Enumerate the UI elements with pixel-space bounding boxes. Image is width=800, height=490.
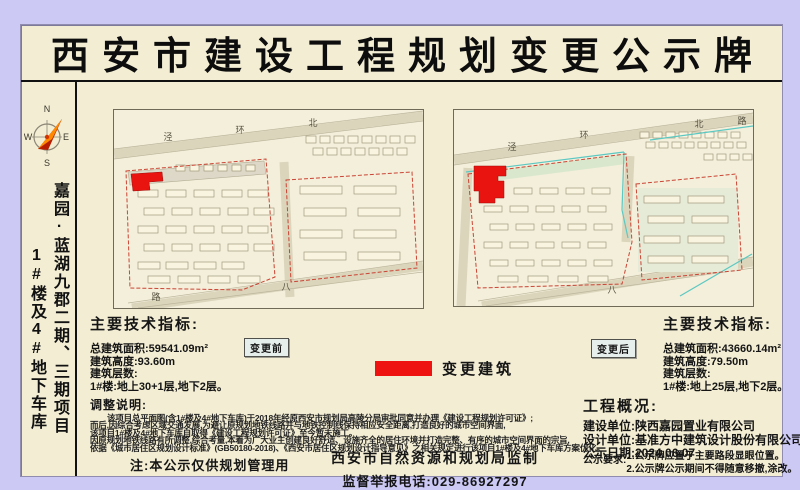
building-footprint bbox=[166, 190, 186, 197]
building-footprint bbox=[731, 132, 740, 138]
sidebar: N S W E 嘉园·蓝湖九郡二期、三期项目 1#楼及4#地下车库 bbox=[21, 82, 77, 476]
building-footprint bbox=[178, 276, 200, 283]
building-footprint bbox=[514, 188, 532, 194]
building-footprint bbox=[698, 142, 707, 148]
building-footprint bbox=[536, 206, 554, 212]
building-footprint bbox=[562, 242, 580, 248]
building-footprint bbox=[238, 276, 260, 283]
building-footprint bbox=[540, 188, 558, 194]
building-footprint bbox=[672, 142, 681, 148]
building-footprint bbox=[692, 256, 728, 263]
building-footprint bbox=[138, 226, 158, 233]
site-plan-before: 泾 环 北 路 八 bbox=[113, 109, 424, 309]
building-footprint bbox=[490, 224, 508, 230]
building-footprint bbox=[334, 136, 344, 143]
page-title: 西安市建设工程规划变更公示牌 bbox=[21, 25, 782, 82]
road-label: 环 bbox=[579, 130, 588, 140]
building-footprint bbox=[510, 206, 528, 212]
road-label: 环 bbox=[235, 125, 244, 135]
building-footprint bbox=[724, 142, 733, 148]
building-footprint bbox=[588, 242, 606, 248]
project-name-line1: 嘉园·蓝湖九郡二期、三期项目 bbox=[47, 182, 71, 435]
building-footprint bbox=[568, 260, 586, 266]
report-phone-line: 监督举报电话:029-86927297 bbox=[285, 471, 585, 490]
building-footprint bbox=[222, 262, 244, 269]
building-footprint bbox=[730, 154, 739, 160]
building-footprint bbox=[246, 165, 255, 171]
building-footprint bbox=[588, 206, 606, 212]
building-footprint bbox=[341, 148, 351, 155]
building-footprint bbox=[358, 208, 400, 216]
changed-building-swatch bbox=[375, 361, 432, 376]
building-footprint bbox=[594, 260, 612, 266]
building-footprint bbox=[743, 154, 752, 160]
building-footprint bbox=[558, 276, 578, 282]
building-footprint bbox=[172, 244, 192, 251]
notice-board-screenshot: 西安市建设工程规划变更公示牌 N S W E 嘉园·蓝湖九郡二期、三期项目 1#… bbox=[0, 0, 800, 490]
building-footprint bbox=[194, 226, 214, 233]
building-footprint bbox=[138, 190, 158, 197]
building-footprint bbox=[248, 226, 268, 233]
building-footprint bbox=[685, 142, 694, 148]
floors-detail-after: 1#楼:地上25层,地下2层。 bbox=[663, 381, 800, 394]
building-footprint bbox=[327, 148, 337, 155]
building-footprint bbox=[566, 188, 584, 194]
building-footprint bbox=[376, 136, 386, 143]
building-footprint bbox=[562, 206, 580, 212]
building-footprint bbox=[405, 136, 415, 143]
changed-building-highlight bbox=[474, 166, 506, 203]
building-height-before: 建筑高度:93.60m bbox=[90, 356, 320, 369]
building-footprint bbox=[516, 260, 534, 266]
road-label: 八 bbox=[281, 282, 290, 292]
building-footprint bbox=[397, 148, 407, 155]
road-label: 泾 bbox=[163, 131, 172, 142]
main-content: 泾 环 北 路 八 bbox=[77, 82, 782, 476]
building-footprint bbox=[711, 142, 720, 148]
road-label: 泾 bbox=[507, 141, 516, 152]
building-footprint bbox=[594, 224, 612, 230]
building-footprint bbox=[646, 142, 655, 148]
road-label: 北 bbox=[694, 119, 703, 129]
builder-line: 建设单位:陕西嘉园置业有限公司 bbox=[583, 420, 793, 434]
building-footprint bbox=[568, 224, 586, 230]
building-footprint bbox=[528, 276, 548, 282]
building-footprint bbox=[144, 208, 164, 215]
notice-board-panel: 西安市建设工程规划变更公示牌 N S W E 嘉园·蓝湖九郡二期、三期项目 1#… bbox=[20, 24, 783, 477]
building-footprint bbox=[194, 262, 216, 269]
building-footprint bbox=[644, 196, 680, 203]
planning-note: 注:本公示仅供规划管理用 bbox=[130, 455, 289, 474]
building-footprint bbox=[204, 165, 213, 171]
designer-line: 设计单位:基准方中建筑设计股份有限公司 bbox=[583, 434, 793, 448]
building-footprint bbox=[510, 242, 528, 248]
building-footprint bbox=[644, 236, 680, 243]
building-footprint bbox=[692, 216, 728, 223]
building-footprint bbox=[354, 230, 396, 238]
after-change-tag: 变更后 bbox=[591, 339, 636, 358]
footer-center: 西安市自然资源和规划局监制 监督举报电话:029-86927297 bbox=[285, 448, 585, 490]
requirements-label: 公示要求: bbox=[583, 451, 626, 476]
building-footprint bbox=[222, 226, 242, 233]
building-footprint bbox=[688, 196, 724, 203]
building-footprint bbox=[383, 148, 393, 155]
building-footprint bbox=[484, 242, 502, 248]
road-label: 八 bbox=[607, 285, 616, 295]
building-footprint bbox=[166, 262, 188, 269]
adjustment-heading: 调整说明: bbox=[90, 396, 590, 413]
building-footprints bbox=[138, 136, 415, 283]
compass-n-label: N bbox=[44, 104, 51, 114]
building-footprint bbox=[592, 188, 610, 194]
building-footprint bbox=[362, 136, 372, 143]
building-footprint bbox=[144, 244, 164, 251]
indicators-before: 主要技术指标: 总建筑面积:59541.09m² 建筑高度:93.60m 建筑层… bbox=[90, 313, 320, 393]
floors-detail-before: 1#楼:地上30+1层,地下2层。 bbox=[90, 381, 320, 394]
compass-s-label: S bbox=[44, 158, 50, 168]
building-footprint bbox=[228, 208, 248, 215]
building-footprint bbox=[232, 165, 241, 171]
building-footprint bbox=[166, 226, 186, 233]
building-footprint bbox=[717, 154, 726, 160]
project-name-line2: 1#楼及4#地下车库 bbox=[24, 247, 48, 431]
building-footprint bbox=[390, 136, 400, 143]
compass-icon: N S W E bbox=[24, 100, 70, 168]
adjustment-explanation: 调整说明: 该项目总平面图(含1#楼及4#地下车库)于2018年经原西安市规划局… bbox=[90, 396, 590, 452]
building-footprint bbox=[536, 242, 554, 248]
total-area-after: 总建筑面积:43660.14m² bbox=[663, 343, 800, 356]
building-footprint bbox=[588, 276, 608, 282]
indicators-before-heading: 主要技术指标: bbox=[90, 313, 320, 334]
building-footprint bbox=[194, 190, 214, 197]
building-footprint bbox=[200, 208, 220, 215]
publicity-requirements: 公示要求: 1.公示牌应置于主要路段显眼位置。 2.公示牌公示期间不得随意移撤,… bbox=[583, 451, 797, 476]
site-plan-after: 泾 环 北 路 八 bbox=[453, 109, 754, 307]
building-footprint bbox=[659, 142, 668, 148]
building-footprint bbox=[648, 216, 684, 223]
building-footprint bbox=[306, 136, 316, 143]
requirement-line: 1.公示牌应置于主要路段显眼位置。 bbox=[626, 451, 797, 464]
building-footprint bbox=[254, 244, 274, 251]
building-footprint bbox=[300, 186, 342, 194]
building-footprint bbox=[640, 132, 649, 138]
changed-building-highlight bbox=[131, 172, 163, 191]
building-footprint bbox=[222, 190, 242, 197]
building-footprint bbox=[313, 148, 323, 155]
building-footprint bbox=[172, 208, 192, 215]
building-footprint bbox=[369, 148, 379, 155]
road-label: 路 bbox=[737, 115, 746, 126]
building-footprint bbox=[300, 230, 342, 238]
floors-label-before: 建筑层数: bbox=[90, 368, 320, 381]
building-footprint bbox=[704, 154, 713, 160]
indicators-after: 主要技术指标: 总建筑面积:43660.14m² 建筑高度:79.50m 建筑层… bbox=[663, 313, 800, 393]
building-footprint bbox=[354, 186, 396, 194]
building-footprint bbox=[254, 208, 274, 215]
indicators-after-heading: 主要技术指标: bbox=[663, 313, 800, 334]
building-footprint bbox=[148, 276, 170, 283]
compass-e-label: E bbox=[63, 132, 69, 142]
building-footprint bbox=[138, 262, 160, 269]
road-label: 路 bbox=[151, 291, 160, 302]
building-footprint bbox=[200, 244, 220, 251]
building-footprint bbox=[228, 244, 248, 251]
total-area-before: 总建筑面积:59541.09m² bbox=[90, 343, 320, 356]
compass-w-label: W bbox=[24, 132, 33, 142]
building-footprint bbox=[320, 136, 330, 143]
building-footprint bbox=[737, 142, 746, 148]
building-footprint bbox=[718, 132, 727, 138]
building-footprint bbox=[648, 256, 684, 263]
building-footprint bbox=[218, 165, 227, 171]
building-footprint bbox=[484, 206, 502, 212]
building-footprint bbox=[304, 208, 346, 216]
building-footprint bbox=[208, 276, 230, 283]
building-footprint bbox=[542, 260, 560, 266]
building-footprint bbox=[348, 136, 358, 143]
building-footprint bbox=[516, 224, 534, 230]
building-footprint bbox=[355, 148, 365, 155]
authority-line: 西安市自然资源和规划局监制 bbox=[285, 448, 585, 468]
road-label: 北 bbox=[308, 118, 317, 128]
legend: 变更建筑 bbox=[375, 358, 514, 379]
building-footprint bbox=[248, 190, 268, 197]
building-footprint bbox=[688, 236, 724, 243]
floors-label-after: 建筑层数: bbox=[663, 368, 800, 381]
building-footprint bbox=[653, 132, 662, 138]
building-height-after: 建筑高度:79.50m bbox=[663, 356, 800, 369]
legend-label: 变更建筑 bbox=[442, 358, 514, 379]
building-footprint bbox=[358, 252, 400, 260]
requirement-line: 2.公示牌公示期间不得随意移撤,涂改。 bbox=[626, 464, 797, 477]
building-footprint bbox=[304, 252, 346, 260]
building-footprint bbox=[542, 224, 560, 230]
overview-heading: 工程概况: bbox=[583, 395, 793, 416]
building-footprint bbox=[498, 276, 518, 282]
building-footprint bbox=[190, 165, 199, 171]
building-footprint bbox=[490, 260, 508, 266]
